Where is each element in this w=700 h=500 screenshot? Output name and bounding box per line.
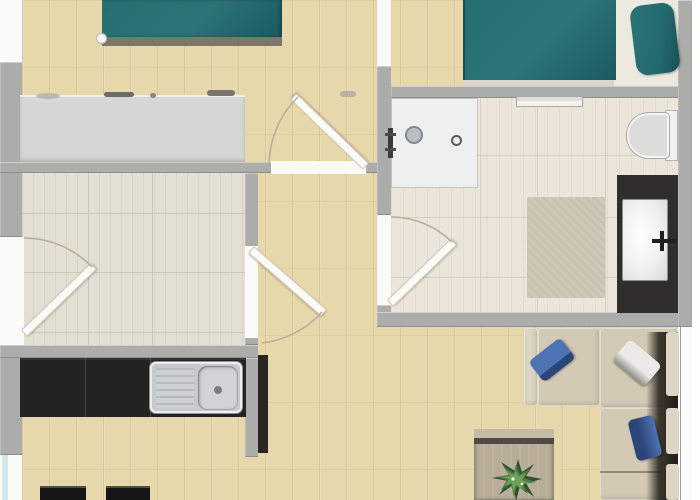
coffee-table-edge-top [474, 429, 554, 438]
bar-stool-2 [106, 486, 150, 500]
wall-right-exterior [678, 0, 692, 327]
coffee-table-edge-band [474, 438, 554, 444]
sideboard-item [207, 90, 235, 96]
wall-mark [340, 91, 356, 97]
shower-head-icon [405, 126, 423, 144]
toilet-bowl [627, 113, 669, 158]
storage-tile-line [22, 332, 245, 333]
sofa-backrest-segment [666, 464, 679, 500]
storage-tile-line [152, 173, 153, 345]
bath-tile-line [605, 98, 606, 312]
room-storage-floor [22, 173, 245, 345]
wall-bedroom1-south-a [0, 162, 271, 173]
shower-drain-icon [451, 135, 462, 146]
sideboard [20, 95, 245, 162]
wall-kitchen-east [245, 358, 258, 457]
bath-tile-line [480, 98, 481, 312]
bed-1-footboard [102, 37, 282, 46]
towel-rail [516, 96, 583, 107]
sink-drain-icon [214, 386, 222, 394]
window-bottom-left-glass [2, 455, 8, 500]
bed-2-foot-edge [463, 80, 614, 86]
shower-handle-icon [385, 148, 396, 151]
faucet-icon [660, 231, 664, 251]
sink-drainboard [156, 368, 194, 408]
storage-tile-line [22, 272, 245, 273]
shower-handle-icon [385, 133, 396, 136]
sideboard-item [150, 93, 156, 98]
entry-door-opening [0, 237, 24, 345]
wall-left-lower [0, 345, 22, 455]
storage-tile-line [88, 173, 89, 345]
wall-left-upper [0, 62, 22, 237]
bed-1-corner-knob [97, 34, 106, 43]
window-top-left [0, 0, 23, 62]
tall-cabinet [258, 355, 268, 453]
margin-right [692, 0, 700, 500]
bed-1-duvet [102, 0, 282, 37]
counter-seam [85, 358, 86, 417]
bed-2-duvet [463, 0, 616, 80]
bar-stool-1 [40, 486, 86, 500]
faucet-icon [652, 239, 676, 243]
bedroom1-door-opening [271, 161, 366, 174]
shower-tray [391, 98, 478, 188]
floor-plan-canvas [0, 0, 700, 500]
wall-bathroom-south [377, 312, 692, 327]
opening-top-mid [377, 0, 391, 66]
wall-kitchen-north [0, 345, 258, 358]
storage-tile-line [22, 213, 245, 214]
bath-rug [527, 197, 605, 298]
sideboard-item [104, 92, 134, 97]
sideboard-item [36, 93, 60, 99]
bed-2-pillow [629, 2, 681, 77]
sofa-backrest-segment [666, 332, 679, 396]
bathroom-door-opening [377, 215, 391, 305]
sofa-backrest-segment [666, 408, 679, 454]
